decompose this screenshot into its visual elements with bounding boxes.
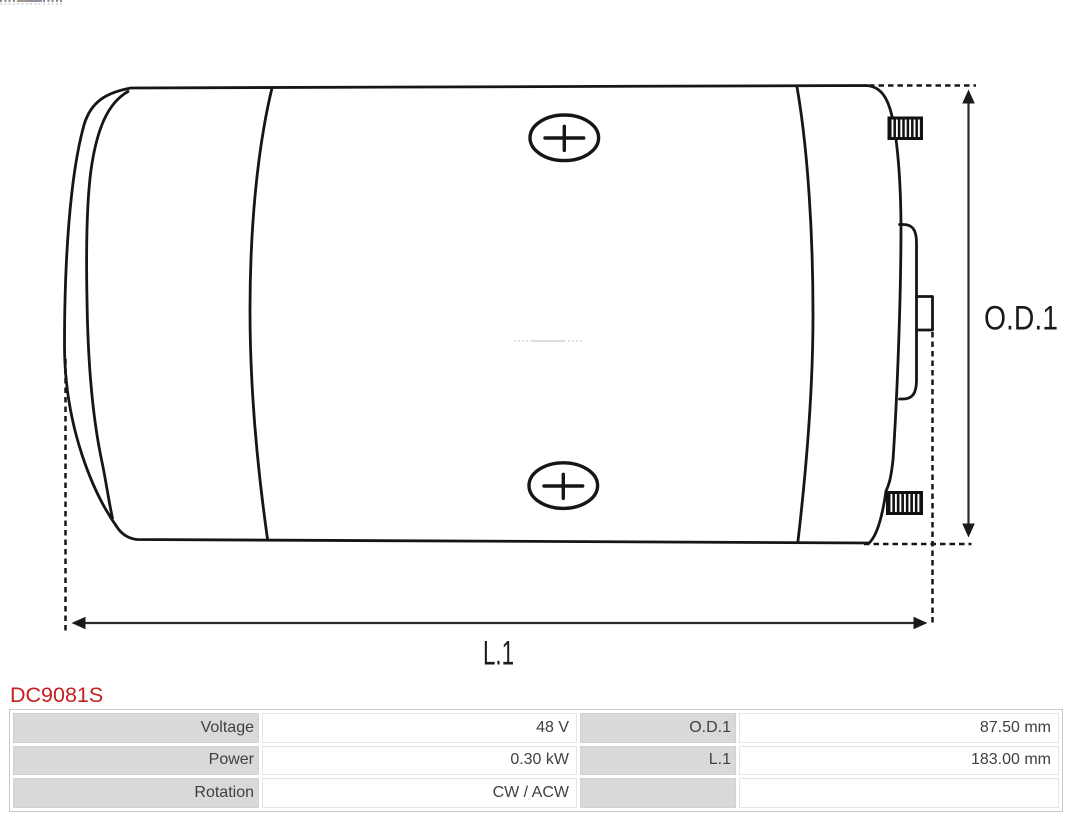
svg-text:O.D.1: O.D.1 (984, 300, 1058, 338)
svg-text:L.1: L.1 (483, 635, 514, 673)
